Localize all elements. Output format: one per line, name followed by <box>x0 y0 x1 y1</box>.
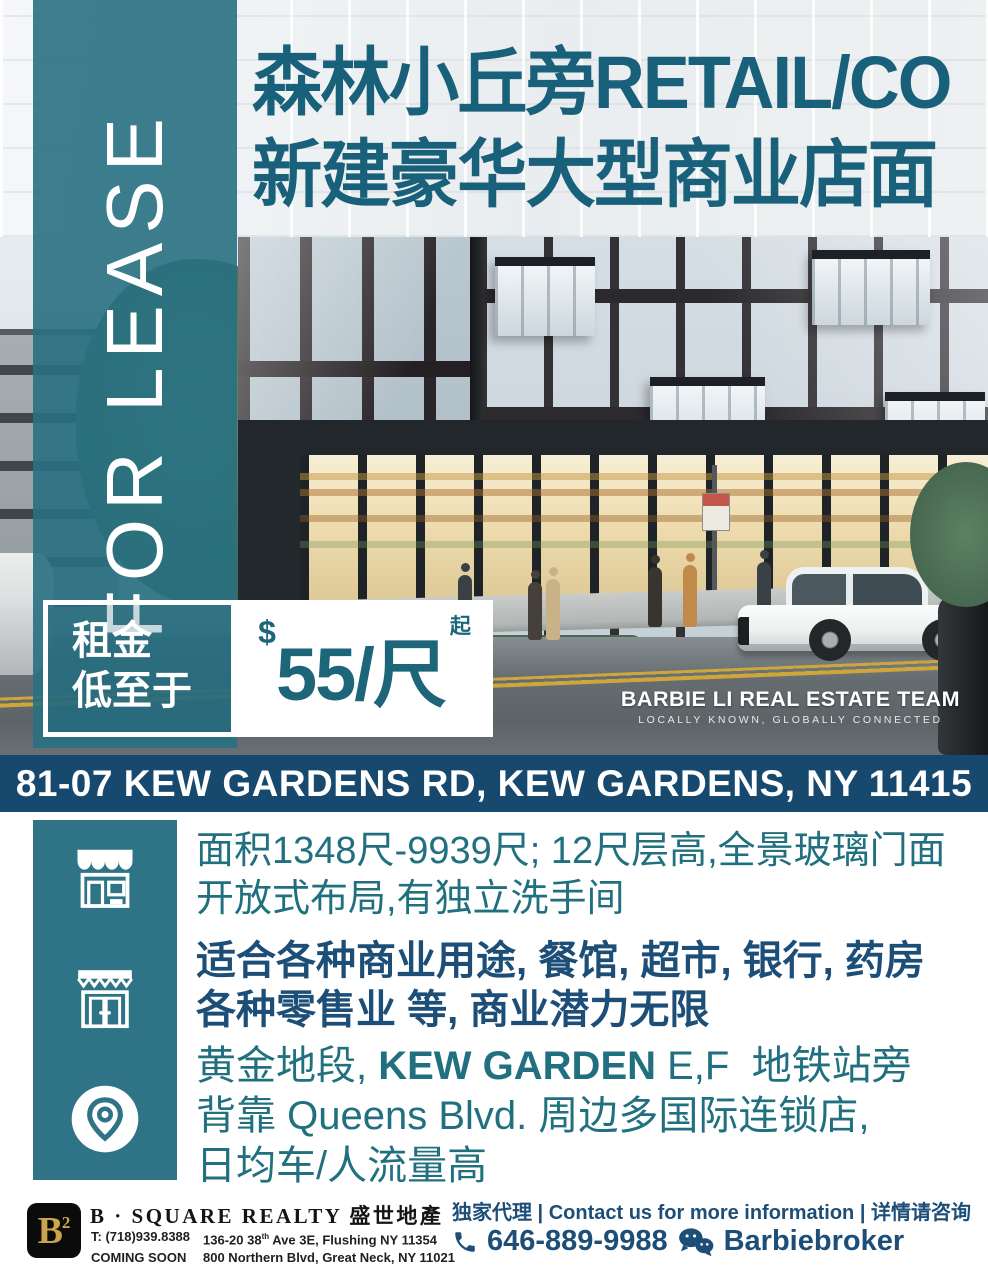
team-credit: BARBIE LI REAL ESTATE TEAM LOCALLY KNOWN… <box>621 687 960 726</box>
feature-line: 开放式布局,有独立洗手间 <box>196 875 982 923</box>
pedestrian <box>648 567 662 627</box>
address-segment: Ave 3E, Flushing NY 11354 <box>269 1232 437 1247</box>
office-row: T: (718)939.8388 136-20 38th Ave 3E, Flu… <box>91 1228 455 1249</box>
phone-number: 646-889-9988 <box>487 1225 668 1258</box>
feature-line-segment: 黄金地段, <box>196 1044 378 1088</box>
feature-location: 黄金地段, KEW GARDEN E,F 地铁站旁 背靠 Queens Blvd… <box>196 1041 982 1191</box>
coming-soon-label: COMING SOON <box>91 1249 203 1267</box>
car-windows <box>792 574 922 609</box>
phone-icon <box>452 1229 478 1255</box>
glass-balcony <box>812 250 930 325</box>
flyer-page: 森林小丘旁RETAIL/CO 新建豪华大型商业店面 <box>0 0 988 1280</box>
address-ordinal: th <box>262 1232 270 1241</box>
contact-tagline: 独家代理 | Contact us for more information |… <box>452 1196 971 1225</box>
feature-line: 黄金地段, KEW GARDEN E,F 地铁站旁 <box>196 1041 982 1091</box>
footer: B 2 B · SQUARE REALTY 盛世地產 T: (718)939.8… <box>0 1185 988 1280</box>
feature-line: 面积1348尺-9939尺; 12尺层高,全景玻璃门面 <box>196 827 982 875</box>
dark-car <box>938 595 988 755</box>
shop-front-icon <box>66 958 144 1036</box>
office-address-1: 136-20 38th Ave 3E, Flushing NY 11354 <box>203 1228 437 1249</box>
headline-line2: 新建豪华大型商业店面 <box>252 138 936 212</box>
feature-size-layout: 面积1348尺-9939尺; 12尺层高,全景玻璃门面 开放式布局,有独立洗手间 <box>196 827 982 923</box>
office-row: COMING SOON 800 Northern Blvd, Great Nec… <box>91 1249 455 1267</box>
office-contact-block: T: (718)939.8388 136-20 38th Ave 3E, Flu… <box>91 1228 455 1267</box>
address-segment: 136-20 38 <box>203 1232 262 1247</box>
rent-label-line1: 租金 <box>72 616 231 666</box>
pedestrian <box>528 582 542 640</box>
rent-label-box: 租金 低至于 <box>43 600 236 737</box>
feature-line: 背靠 Queens Blvd. 周边多国际连锁店, <box>196 1091 982 1141</box>
store-shelves <box>300 489 988 496</box>
storefront-awning-icon <box>65 836 145 916</box>
car-wheel <box>809 619 851 661</box>
car-grille <box>738 617 749 645</box>
team-tagline: LOCALLY KNOWN, GLOBALLY CONNECTED <box>621 714 960 726</box>
logo-exponent: 2 <box>62 1213 71 1233</box>
pedestrian <box>683 565 697 627</box>
rent-label-line2: 低至于 <box>72 666 231 716</box>
wechat-id: Barbiebroker <box>724 1225 905 1258</box>
pedestrian <box>546 579 560 640</box>
facade-band <box>238 420 988 455</box>
feature-line-segment: E,F 地铁站旁 <box>656 1044 912 1088</box>
feature-line: 日均车/人流量高 <box>196 1141 982 1191</box>
glass-balcony <box>495 257 595 336</box>
office-address-2: 800 Northern Blvd, Great Neck, NY 11021 <box>203 1249 455 1267</box>
team-name: BARBIE LI REAL ESTATE TEAM <box>621 687 960 712</box>
price-suffix: 起 <box>450 610 471 640</box>
location-pin-icon <box>64 1078 146 1160</box>
address-bar: 81-07 KEW GARDENS RD, KEW GARDENS, NY 11… <box>0 755 988 812</box>
b-square-logo: B 2 <box>27 1203 81 1258</box>
wechat-icon <box>677 1227 715 1257</box>
logo-letter: B <box>38 1212 63 1250</box>
property-address: 81-07 KEW GARDENS RD, KEW GARDENS, NY 11… <box>16 763 972 805</box>
office-phone: T: (718)939.8388 <box>91 1228 203 1249</box>
contact-details: 646-889-9988 Barbiebroker <box>452 1225 904 1258</box>
headline-line1: 森林小丘旁RETAIL/CO <box>252 46 951 120</box>
company-name: B · SQUARE REALTY 盛世地產 <box>90 1200 443 1230</box>
feature-business-uses: 适合各种商业用途, 餐馆, 超市, 银行, 药房 各种零售业 等, 商业潜力无限 <box>196 937 982 1035</box>
feature-line-bold-segment: KEW GARDEN <box>378 1044 656 1088</box>
price-value-box: $ 55/尺 起 <box>236 600 493 737</box>
feature-icon-column <box>33 820 177 1180</box>
feature-line: 适合各种商业用途, 餐馆, 超市, 银行, 药房 <box>196 937 982 986</box>
feature-line: 各种零售业 等, 商业潜力无限 <box>196 986 982 1035</box>
currency-symbol: $ <box>258 614 276 651</box>
price-amount: 55/尺 <box>276 615 445 722</box>
car-cabin <box>786 567 928 609</box>
street-sign <box>702 493 730 531</box>
for-lease-text: FOR LEASE <box>95 109 175 639</box>
